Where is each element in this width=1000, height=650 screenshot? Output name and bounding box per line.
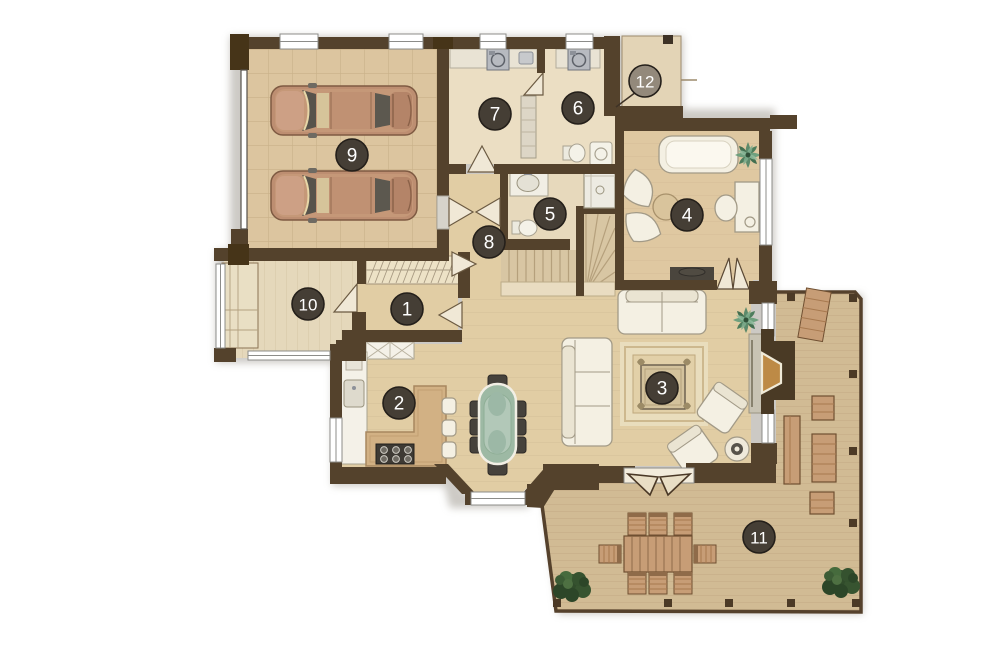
svg-text:3: 3 xyxy=(657,379,668,400)
svg-text:4: 4 xyxy=(682,206,693,227)
svg-text:11: 11 xyxy=(750,529,768,548)
svg-text:1: 1 xyxy=(402,300,413,321)
svg-text:5: 5 xyxy=(545,205,556,226)
svg-text:6: 6 xyxy=(573,99,584,120)
svg-text:12: 12 xyxy=(636,73,655,92)
svg-text:8: 8 xyxy=(484,233,495,254)
svg-text:10: 10 xyxy=(299,296,318,315)
svg-text:7: 7 xyxy=(490,105,501,126)
svg-text:9: 9 xyxy=(347,146,358,167)
svg-text:2: 2 xyxy=(394,394,405,415)
